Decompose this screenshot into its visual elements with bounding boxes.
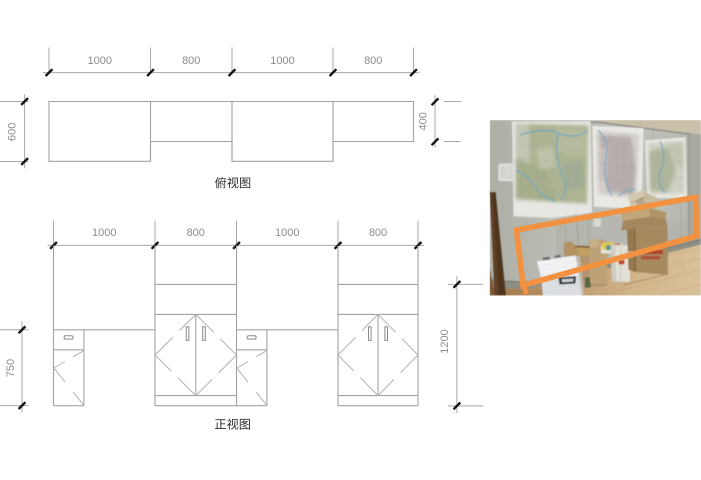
svg-text:800: 800 [182, 55, 200, 67]
svg-text:1000: 1000 [270, 55, 294, 67]
svg-text:1200: 1200 [439, 329, 451, 353]
svg-text:800: 800 [187, 227, 205, 239]
svg-text:800: 800 [364, 55, 382, 67]
svg-text:600: 600 [7, 123, 19, 141]
svg-text:800: 800 [369, 227, 387, 239]
svg-text:1000: 1000 [92, 227, 116, 239]
svg-text:1000: 1000 [88, 55, 112, 67]
svg-text:400: 400 [418, 112, 430, 130]
svg-text:1000: 1000 [275, 227, 299, 239]
svg-text:750: 750 [5, 359, 17, 377]
